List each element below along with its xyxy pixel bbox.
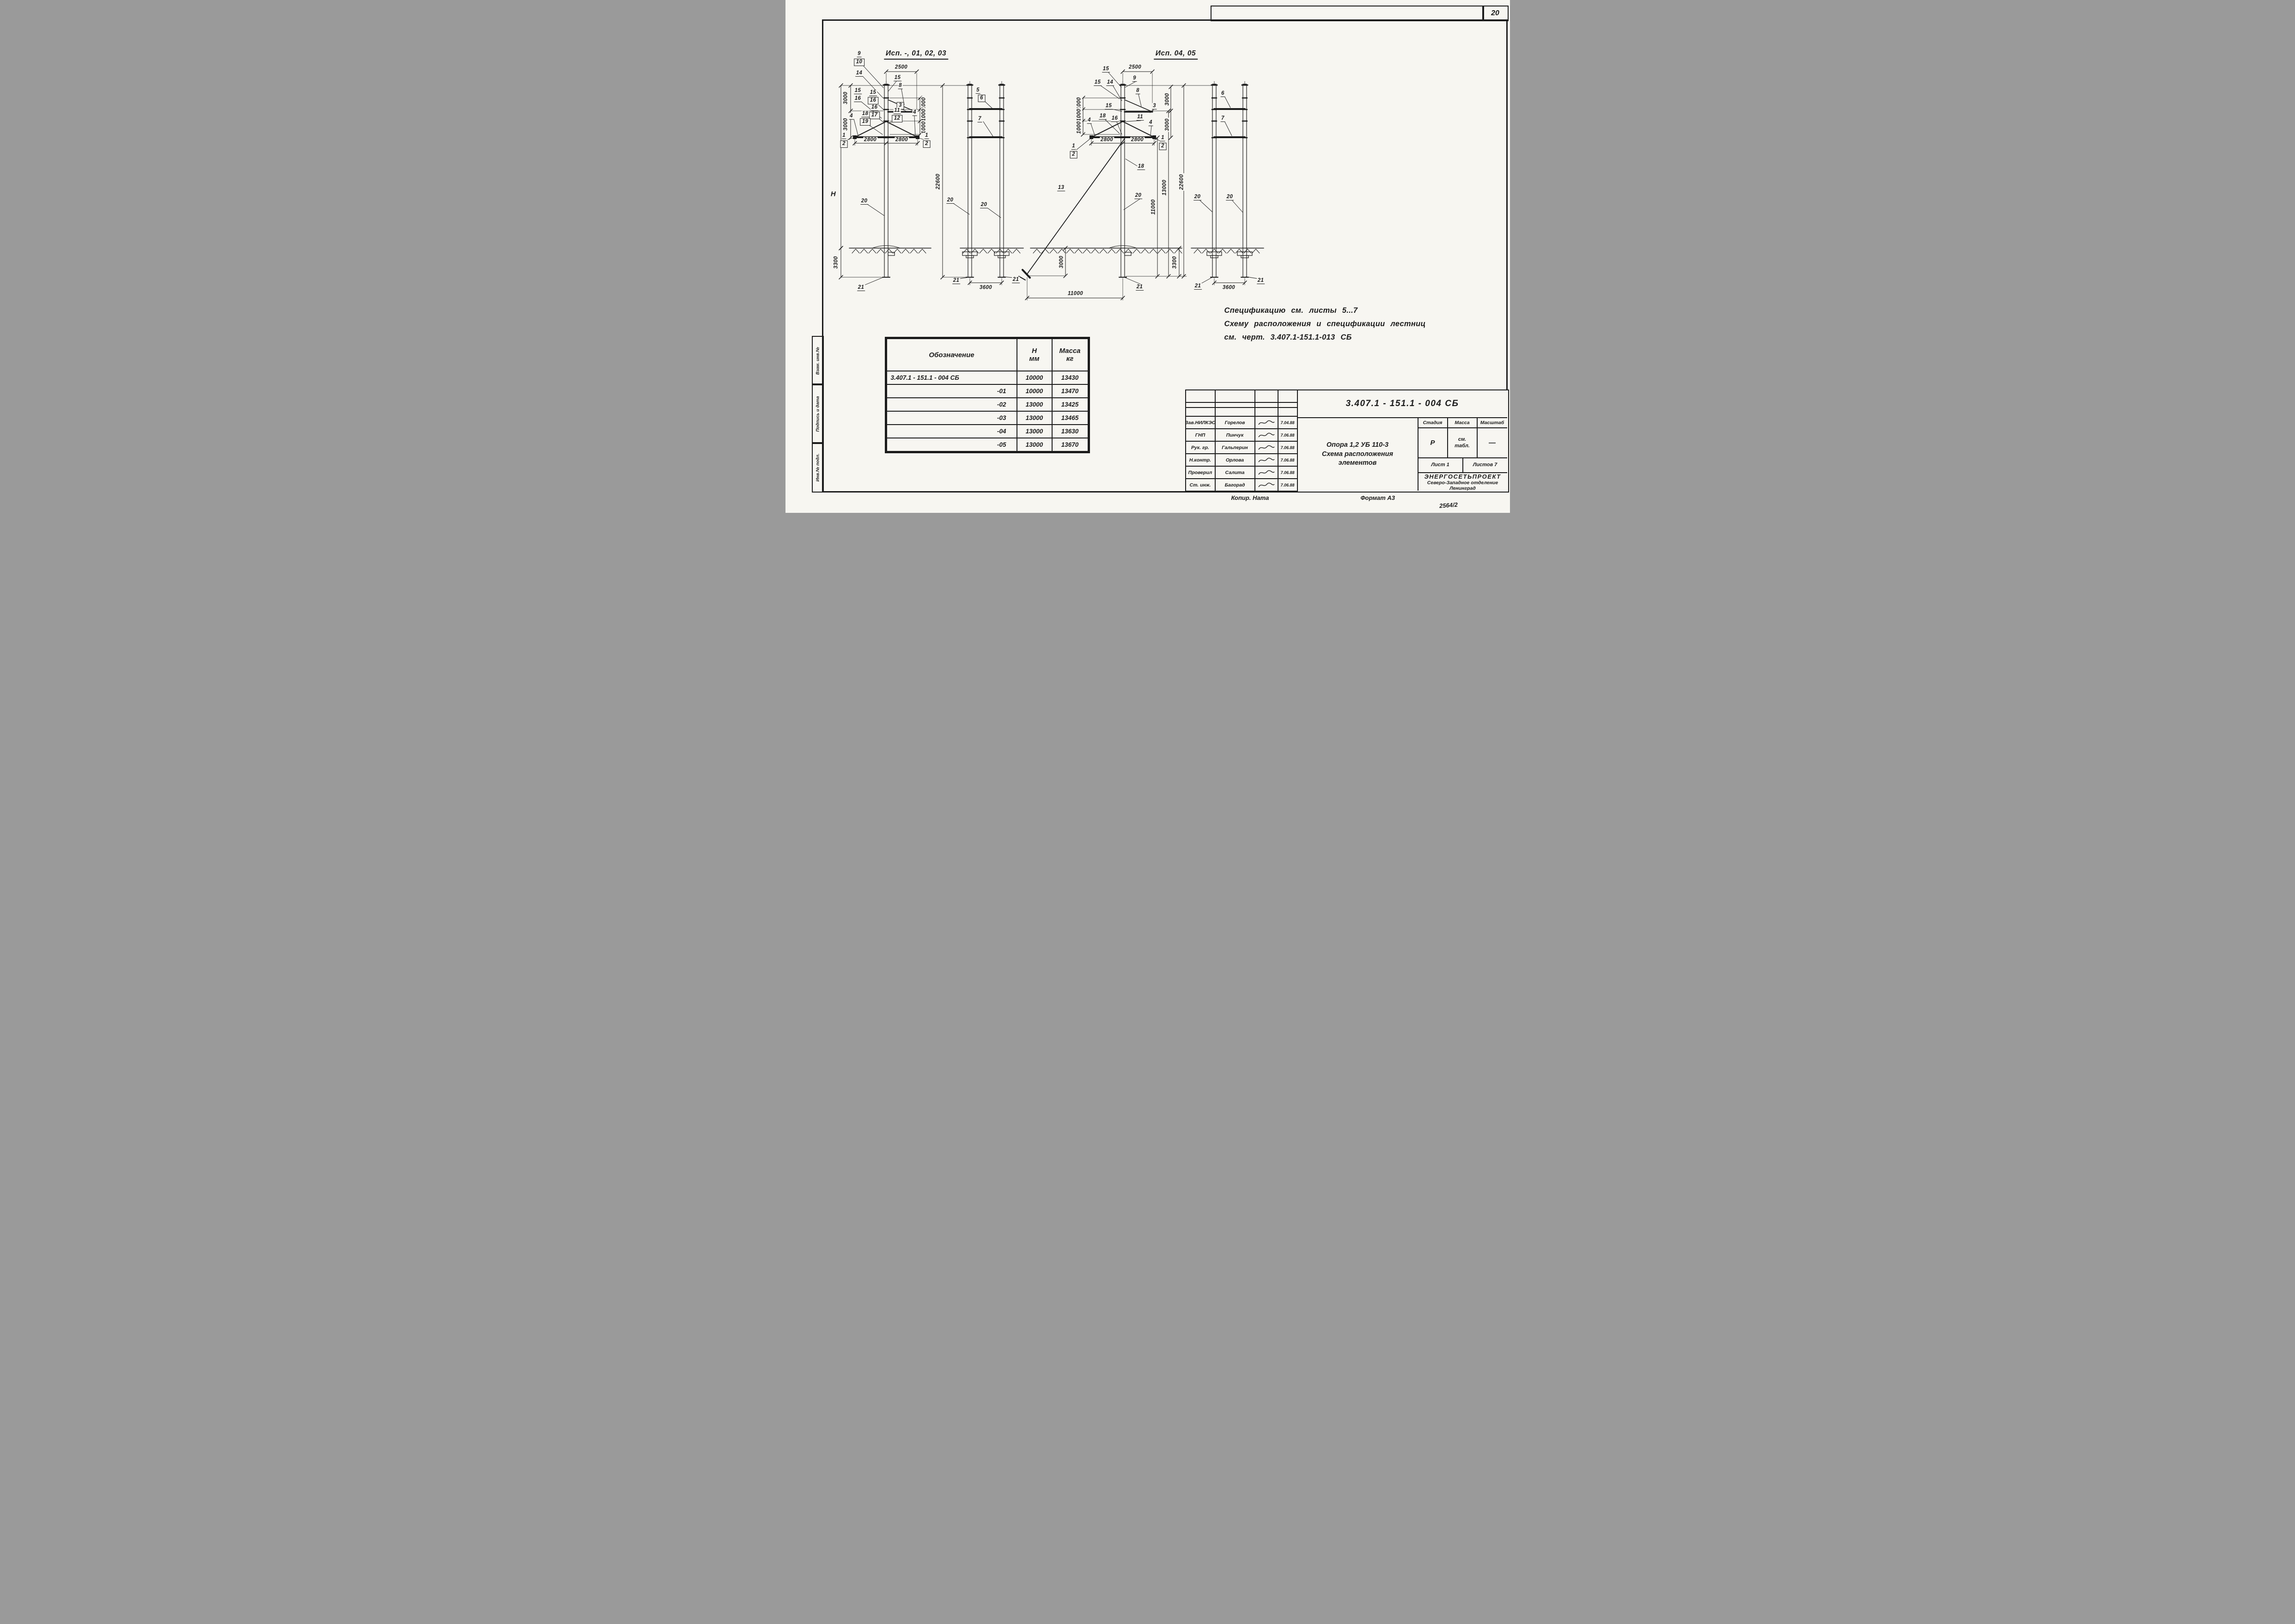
label-g1f_d2800r: 2800 xyxy=(895,137,909,143)
label-g2f_c9: 9 xyxy=(1132,75,1137,82)
title-block: Зав.НИЛКЭСГорелов7.04.88ГНППинчук7.06.88… xyxy=(1185,389,1509,493)
sheets-value: 7 xyxy=(1494,462,1497,468)
label-g2f_c16: 16 xyxy=(1111,116,1119,122)
label-g1f_d2800l: 2800 xyxy=(863,137,877,143)
personnel-signature xyxy=(1255,417,1278,429)
label-g1f_c9: 9 xyxy=(857,51,862,57)
label-g2f_c4r: 4 xyxy=(1148,120,1153,126)
organization-name: ЭНЕРГОСЕТЬПРОЕКТ xyxy=(1424,473,1501,480)
spec-table-row: -041300013630 xyxy=(887,425,1088,438)
label-g1f_c15c: 15 xyxy=(869,90,877,96)
copier-note: Копир. Ната xyxy=(1231,494,1269,501)
label-g2f_d22600: 22600 xyxy=(1179,173,1185,191)
scale-value: — xyxy=(1489,439,1496,447)
mass-header: Масса xyxy=(1448,418,1478,428)
note-line-3: см. черт. 3.407.1-151.1-013 СБ xyxy=(1224,333,1352,342)
label-g1f_d3000a: 3000 xyxy=(843,91,849,105)
label-g2s_c20b: 20 xyxy=(1226,194,1234,201)
label-g1f_c2r: 2 xyxy=(923,140,931,148)
label-g1f_c1r: 1 xyxy=(924,133,929,139)
note-line-1: Спецификацию см. листы 5...7 xyxy=(1224,306,1358,315)
scale-value-cell: — xyxy=(1478,428,1507,458)
spec-table-row: -051300013670 xyxy=(887,438,1088,451)
spec-table-header-row: Обозначение Н мм Масса кг xyxy=(887,339,1088,371)
label-g1f_d2500: 2500 xyxy=(894,64,908,70)
archive-number: 2564/2 xyxy=(1439,501,1458,510)
label-g1f_c4r: 4 xyxy=(912,109,917,116)
drawing-title-line2: элементов xyxy=(1339,459,1377,468)
organization-cell: ЭНЕРГОСЕТЬПРОЕКТ Северо-Западное отделен… xyxy=(1418,473,1507,491)
mass-value: см. табл. xyxy=(1455,437,1470,449)
label-g1s_d3600: 3600 xyxy=(979,285,993,291)
cell-mass: 13425 xyxy=(1052,398,1088,411)
cell-designation: -05 xyxy=(887,438,1017,451)
cell-mass: 13670 xyxy=(1052,438,1088,451)
label-g1f_d3000b: 3000 xyxy=(843,117,849,131)
label-g2f_d11000h: 11000 xyxy=(1067,291,1084,297)
organization-branch: Северо-Западное отделение xyxy=(1427,480,1498,486)
label-g2f_c2r: 2 xyxy=(1159,143,1167,150)
sheet-cell: Лист 1 xyxy=(1418,458,1463,473)
label-g1f_c18: 18 xyxy=(861,111,870,117)
label-g2s_c20a: 20 xyxy=(1193,194,1202,201)
label-g2f_c15a: 15 xyxy=(1102,66,1110,73)
mass-value-cell: см. табл. xyxy=(1448,428,1478,458)
label-g2s_c7: 7 xyxy=(1220,116,1225,122)
label-g1f_c19: 19 xyxy=(860,118,871,126)
col-h: Н xyxy=(1032,347,1037,355)
spec-table-row: 3.407.1 - 151.1 - 004 СБ1000013430 xyxy=(887,371,1088,384)
personnel-role: Рук. гр. xyxy=(1186,442,1216,454)
personnel-row: Рук. гр.Гальперин7.06.88 xyxy=(1186,442,1298,454)
label-g1s_d22600: 22600 xyxy=(935,173,941,190)
label-g1f_c15a: 15 xyxy=(894,75,902,81)
personnel-role: Зав.НИЛКЭС xyxy=(1186,417,1216,429)
label-g1f_c20: 20 xyxy=(860,198,869,205)
cell-designation: 3.407.1 - 151.1 - 004 СБ xyxy=(887,371,1017,384)
label-g2f_d11000v: 11000 xyxy=(1151,198,1157,215)
label-g2s_c21a: 21 xyxy=(1194,283,1202,290)
label-g2f_d13000: 13000 xyxy=(1162,179,1168,196)
doc-number: 3.407.1 - 151.1 - 004 СБ xyxy=(1346,399,1459,409)
label-g2f_c11: 11 xyxy=(1136,114,1144,121)
personnel-row: ГНППинчук7.06.88 xyxy=(1186,429,1298,442)
label-g2f_d2800r: 2800 xyxy=(1130,137,1144,143)
change-row xyxy=(1186,399,1298,408)
label-g1s_c20a: 20 xyxy=(946,197,955,204)
label-g1f_c21: 21 xyxy=(857,285,865,291)
cell-height: 13000 xyxy=(1017,411,1052,425)
spec-table-row: -031300013465 xyxy=(887,411,1088,425)
sheets-cell: Листов 7 xyxy=(1463,458,1507,473)
cell-mass: 13465 xyxy=(1052,411,1088,425)
label-g2f_c3: 3 xyxy=(1152,103,1157,109)
personnel-date: 7.04.88 xyxy=(1278,417,1298,429)
label-g1f_c8: 8 xyxy=(898,83,903,89)
label-g2f_d3000b: 3000 xyxy=(1164,117,1170,132)
cell-height: 13000 xyxy=(1017,438,1052,451)
label-g1s_c21a: 21 xyxy=(952,278,961,284)
product-title: Опора 1,2 УБ 110-3 xyxy=(1327,441,1388,450)
col-mass-unit: кг xyxy=(1066,355,1074,363)
personnel-name: Багорад xyxy=(1216,479,1255,492)
label-g2s_c21b: 21 xyxy=(1257,278,1265,284)
label-g2f_c21: 21 xyxy=(1136,284,1144,291)
label-g1s_c6: 6 xyxy=(978,95,986,102)
label-g2f_c18a: 18 xyxy=(1099,113,1107,120)
view-title-isp-04-05: Исп. 04, 05 xyxy=(1154,49,1198,60)
label-g2f_c2l: 2 xyxy=(1070,151,1077,158)
cell-height: 10000 xyxy=(1017,384,1052,398)
cell-designation: -01 xyxy=(887,384,1017,398)
note-line-2: Схему расположения и спецификации лестни… xyxy=(1224,320,1426,328)
label-g1f_c15b: 15 xyxy=(854,88,862,94)
cell-height: 10000 xyxy=(1017,371,1052,384)
personnel-role: Проверил xyxy=(1186,467,1216,479)
label-g1f_c4l: 4 xyxy=(849,113,854,120)
label-g1f_c2l: 2 xyxy=(840,140,848,148)
label-g2f_c8: 8 xyxy=(1135,88,1140,94)
label-g1s_c5: 5 xyxy=(975,87,980,94)
cell-designation: -02 xyxy=(887,398,1017,411)
doc-number-cell: 3.407.1 - 151.1 - 004 СБ xyxy=(1298,390,1507,418)
personnel-name: Горелов xyxy=(1216,417,1255,429)
label-g1f_c16c: 16 xyxy=(868,97,879,104)
label-g2f_c18b: 18 xyxy=(1137,164,1145,170)
label-g2f_d2500: 2500 xyxy=(1128,64,1142,70)
personnel-name: Пинчук xyxy=(1216,429,1255,442)
view-title-isp-01-02-03: Исп. -, 01, 02, 03 xyxy=(884,49,948,60)
personnel-name: Гальперин xyxy=(1216,442,1255,454)
col-designation: Обозначение xyxy=(929,351,974,359)
stage-value-cell: Р xyxy=(1418,428,1448,458)
cell-designation: -04 xyxy=(887,425,1017,438)
label-g2f_c13: 13 xyxy=(1057,185,1065,191)
change-row xyxy=(1186,408,1298,417)
label-g1f_c1l: 1 xyxy=(841,133,846,139)
personnel-row: Зав.НИЛКЭСГорелов7.04.88 xyxy=(1186,417,1298,429)
personnel-date: 7.06.88 xyxy=(1278,442,1298,454)
label-g2s_c6: 6 xyxy=(1220,91,1225,97)
sheet-value: 1 xyxy=(1447,462,1449,468)
label-g2f_d3300: 3300 xyxy=(1172,255,1178,269)
label-g2f_c20: 20 xyxy=(1134,193,1143,199)
personnel-row: ПроверилСалита7.06.88 xyxy=(1186,467,1298,479)
personnel-role: Ст. инж. xyxy=(1186,479,1216,492)
label-g2s_d3600: 3600 xyxy=(1222,285,1236,291)
spec-table-row: -021300013425 xyxy=(887,398,1088,411)
col-h-unit: мм xyxy=(1029,355,1039,363)
personnel-date: 7.06.88 xyxy=(1278,454,1298,467)
spec-table: Обозначение Н мм Масса кг 3.407.1 - 151.… xyxy=(885,337,1090,453)
cell-mass: 13430 xyxy=(1052,371,1088,384)
cell-mass: 13630 xyxy=(1052,425,1088,438)
mass-label: Масса xyxy=(1455,420,1469,426)
drawing-sheet: 20 Взам. инв.№ Подпись и дата Инв.№ подл… xyxy=(785,0,1510,513)
label-g1f_d3300: 3300 xyxy=(833,255,839,269)
label-g1s_c20b: 20 xyxy=(980,202,988,208)
personnel-name: Салита xyxy=(1216,467,1255,479)
personnel-signature xyxy=(1255,479,1278,492)
label-g2f_c15b: 15 xyxy=(1094,79,1102,86)
scale-header: Масштаб xyxy=(1478,418,1507,428)
label-g1s_c7: 7 xyxy=(977,116,982,122)
scale-label: Масштаб xyxy=(1480,420,1504,426)
cell-height: 13000 xyxy=(1017,398,1052,411)
personnel-signature xyxy=(1255,429,1278,442)
stage-label: Стадия xyxy=(1423,420,1443,426)
cell-height: 13000 xyxy=(1017,425,1052,438)
label-g1f_c11: 11 xyxy=(893,108,901,114)
sheet-label: Лист xyxy=(1431,462,1445,468)
label-g1f_c12: 12 xyxy=(892,115,903,122)
label-g2f_d2800l: 2800 xyxy=(1100,137,1114,143)
drawing-title-line1: Схема расположения xyxy=(1322,450,1393,459)
label-g2f_d3000a: 3000 xyxy=(1164,92,1170,106)
label-g2f_c1r: 1 xyxy=(1160,135,1165,141)
label-g1f_c14: 14 xyxy=(855,70,864,77)
sheets-label: Листов xyxy=(1473,462,1493,468)
spec-table-row: -011000013470 xyxy=(887,384,1088,398)
format-note: Формат А3 xyxy=(1361,494,1395,501)
label-g2f_c15c: 15 xyxy=(1105,103,1113,109)
label-g2f_c14: 14 xyxy=(1106,79,1114,86)
personnel-signature xyxy=(1255,454,1278,467)
label-g1f_c16d: 16 xyxy=(871,104,879,111)
label-g1f_c10: 10 xyxy=(854,59,865,66)
label-g1f_c16b: 16 xyxy=(854,96,862,102)
personnel-row: Ст. инж.Багорад7.06.88 xyxy=(1186,479,1298,492)
label-g2f_c1l: 1 xyxy=(1071,143,1076,150)
organization-city: Ленинград xyxy=(1449,486,1476,491)
drawing-title-cell: Опора 1,2 УБ 110-3 Схема расположения эл… xyxy=(1298,418,1418,491)
personnel-role: ГНП xyxy=(1186,429,1216,442)
label-g2f_d3000c: 3000 xyxy=(1059,255,1065,269)
personnel-date: 7.06.88 xyxy=(1278,467,1298,479)
label-g2f_d1000c: 1000 xyxy=(1076,120,1082,134)
personnel-signature xyxy=(1255,442,1278,454)
personnel-date: 7.06.88 xyxy=(1278,429,1298,442)
col-mass: Масса xyxy=(1059,347,1080,355)
cell-designation: -03 xyxy=(887,411,1017,425)
cell-mass: 13470 xyxy=(1052,384,1088,398)
label-g1s_c21b: 21 xyxy=(1012,277,1020,283)
personnel-name: Орлова xyxy=(1216,454,1255,467)
stage-value: Р xyxy=(1430,439,1435,447)
stage-header: Стадия xyxy=(1418,418,1448,428)
personnel-signature xyxy=(1255,467,1278,479)
label-g2f_c4l: 4 xyxy=(1087,117,1092,124)
personnel-role: Н.контр. xyxy=(1186,454,1216,467)
personnel-date: 7.06.88 xyxy=(1278,479,1298,492)
personnel-row: Н.контр.Орлова7.06.88 xyxy=(1186,454,1298,467)
label-g1f_dH: H xyxy=(830,190,837,198)
